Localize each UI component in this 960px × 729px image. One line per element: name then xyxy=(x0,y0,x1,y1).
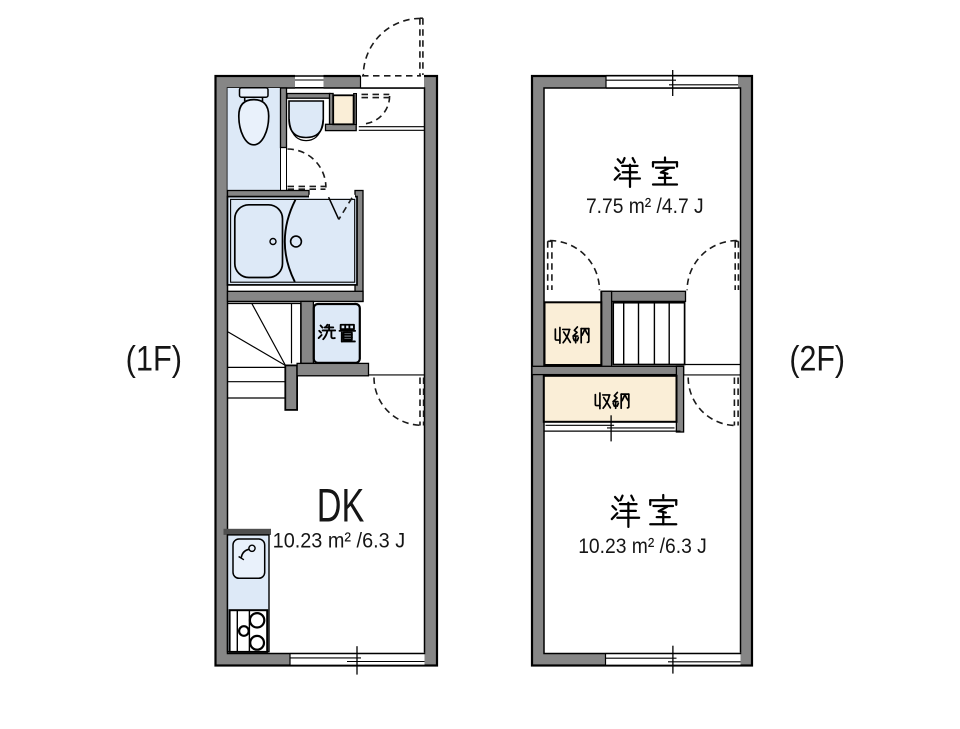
svg-text:10.23 m² /6.3 J: 10.23 m² /6.3 J xyxy=(578,534,707,558)
svg-text:(2F): (2F) xyxy=(789,339,845,379)
svg-text:7.75 m² /4.7 J: 7.75 m² /4.7 J xyxy=(586,194,704,218)
svg-text:(1F): (1F) xyxy=(126,339,182,379)
svg-text:10.23 m² /6.3 J: 10.23 m² /6.3 J xyxy=(273,529,406,553)
svg-text:DK: DK xyxy=(317,480,365,533)
